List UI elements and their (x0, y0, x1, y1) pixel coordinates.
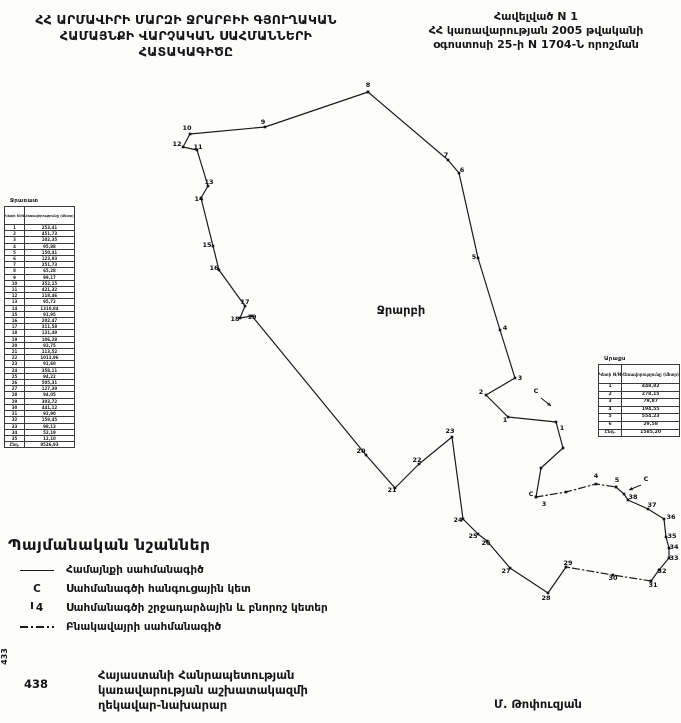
boundary-point-label: 5 (615, 476, 620, 484)
table-row: 5554,23 (599, 414, 680, 422)
table-row: 1448,82 (599, 384, 680, 392)
legend-title: Պայմանական նշաններ (8, 536, 328, 554)
distance-table-left-body: 1253,412451,733102,35495,885150,416123,9… (5, 225, 75, 448)
boundary-point-label: 13 (204, 178, 213, 186)
boundary-point-label: 26 (481, 539, 491, 547)
legend-item-label: Սահմանագծի շրջադարձային և բնորոշ կետեր (66, 602, 328, 614)
boundary-point-marker (182, 146, 185, 149)
boundary-point-marker (540, 467, 543, 470)
issuing-authority: Հայաստանի Հանրապետության կառավարության ա… (98, 668, 308, 713)
issuing-authority-line2: կառավարության աշխատակազմի (98, 683, 308, 698)
boundary-point-label: 11 (193, 143, 203, 151)
legend-item-label: Սահմանագծի հանգուցային կետ (66, 583, 251, 595)
boundary-point-marker (623, 493, 626, 496)
boundary-point-label: 3 (518, 374, 523, 382)
boundary-point-label: 32 (657, 567, 666, 575)
boundary-point-marker (562, 447, 565, 450)
legend-item-settlement-boundary: Բնակավայրի սահմանագիծ (8, 621, 328, 633)
boundary-segment-solid (183, 92, 566, 593)
turning-point-symbol: 4 (8, 602, 66, 614)
boundary-point-marker (264, 126, 267, 129)
legend-item-label: Համայնքի սահմանագիծ (66, 564, 204, 576)
signature-name: Մ. Թոփուզյան (494, 697, 582, 711)
boundary-point-label: 23 (445, 427, 454, 435)
boundary-point-marker (477, 257, 480, 260)
boundary-point-label: 24 (453, 516, 463, 524)
boundary-point-label: 4 (594, 472, 599, 480)
boundary-point-label: C (529, 490, 534, 498)
legend-item-junction-point: C Սահմանագծի հանգուցային կետ (8, 583, 328, 595)
legend-item-label: Բնակավայրի սահմանագիծ (66, 621, 221, 633)
boundary-point-label: 10 (182, 124, 192, 132)
boundary-point-marker (189, 133, 192, 136)
boundary-point-label: 16 (209, 264, 219, 272)
table-row: 4194,55 (599, 406, 680, 414)
junction-point-symbol: C (8, 583, 66, 595)
boundary-point-label: 20 (356, 447, 366, 455)
issuing-authority-line1: Հայաստանի Հանրապետության (98, 668, 308, 683)
boundary-point-label: 15 (202, 241, 212, 249)
region-label: Ջրարբի (366, 303, 436, 317)
boundary-segment-dashdot (536, 484, 616, 497)
boundary-point-label: 21 (387, 486, 397, 494)
boundary-point-label: C (534, 387, 539, 395)
boundary-point-marker (499, 329, 502, 332)
boundary-point-label: 9 (261, 118, 266, 126)
boundary-point-label: 37 (647, 501, 656, 509)
document-sheet: ՀՀ ԱՐՄԱՎԻՐԻ ՄԱՐԶԻ ՋՐԱՐԲԻԻ ԳՅՈՒՂԱԿԱՆ ՀԱՄԱ… (0, 0, 681, 723)
boundary-point-marker (615, 486, 618, 489)
boundary-point-label: 38 (628, 493, 638, 501)
boundary-point-label: 1 (503, 416, 508, 424)
boundary-point-label: C (644, 475, 649, 483)
distance-table-right-title: Արաքս (604, 356, 680, 362)
boundary-point-marker (663, 518, 666, 521)
settlement-boundary-line-icon (8, 626, 66, 628)
boundary-point-label: 35 (667, 532, 677, 540)
boundary-lines (183, 92, 669, 593)
boundary-point-marker (595, 483, 598, 486)
boundary-point-marker (212, 245, 215, 248)
boundary-point-markers (182, 91, 671, 595)
distance-table-left-grid: Կետի N/N Հեռավորությունը (մետր) 1253,412… (4, 206, 75, 448)
col-header-distance: Հեռավորությունը (մետր) (25, 207, 75, 225)
table-total-row: Ընդ.8536,93 (5, 442, 75, 448)
table-row: 379,87 (599, 399, 680, 407)
boundary-point-marker (555, 421, 558, 424)
boundary-point-labels: 89101211131415161718197654321C1202122232… (172, 81, 679, 602)
legend: Պայմանական նշաններ Համայնքի սահմանագիծ C… (8, 536, 328, 640)
distance-table-left: Ջրառատ Կետի N/N Հեռավորությունը (մետր) 1… (4, 198, 75, 448)
col-header-point: Կետի N/N (599, 365, 622, 384)
boundary-point-label: 34 (669, 543, 679, 551)
distance-table-left-title: Ջրառատ (10, 198, 75, 204)
boundary-point-label: 36 (666, 513, 676, 521)
distance-table-right-body: 1448,822278,15379,874194,555554,23629,58… (599, 384, 680, 437)
boundary-point-label: 3 (542, 500, 547, 508)
distance-table-right: Արաքս Կետի N/N Հեռավորությունը (մետր) 14… (598, 356, 680, 437)
boundary-point-label: 25 (468, 532, 478, 540)
col-header-distance: Հեռավորությունը (մետր) (622, 365, 680, 384)
boundary-point-label: 31 (648, 581, 658, 589)
boundary-point-label: 8 (366, 81, 371, 89)
table-row: 629,58 (599, 421, 680, 429)
boundary-point-marker (535, 496, 538, 499)
boundary-point-label: 7 (444, 151, 449, 159)
boundary-point-label: 28 (541, 594, 551, 602)
boundary-point-marker (451, 436, 454, 439)
boundary-point-label: 33 (669, 554, 678, 562)
margin-number-vertical: 433 (0, 648, 9, 665)
page-number: 438 (24, 677, 48, 691)
boundary-point-marker (485, 394, 488, 397)
boundary-point-marker (565, 491, 568, 494)
boundary-point-marker (514, 377, 517, 380)
community-boundary-line-icon (8, 570, 66, 571)
boundary-point-label: 4 (503, 324, 508, 332)
boundary-point-marker (447, 159, 450, 162)
legend-item-community-boundary: Համայնքի սահմանագիծ (8, 564, 328, 576)
col-header-point: Կետի N/N (5, 207, 25, 225)
boundary-point-label: 1 (560, 424, 565, 432)
table-total-row: Ընդ.1585,20 (599, 429, 680, 437)
boundary-point-label: 30 (608, 574, 618, 582)
table-row: 2278,15 (599, 391, 680, 399)
legend-item-turning-points: 4 Սահմանագծի շրջադարձային և բնորոշ կետեր (8, 602, 328, 614)
issuing-authority-line3: ղեկավար-նախարար (98, 698, 308, 713)
boundary-point-label: 29 (563, 559, 573, 567)
boundary-segment-solid (368, 92, 563, 497)
boundary-point-label: 2 (479, 388, 484, 396)
boundary-point-marker (367, 91, 370, 94)
boundary-point-label: 5 (472, 253, 477, 261)
boundary-point-label: 18 (230, 315, 240, 323)
boundary-point-label: 14 (194, 195, 204, 203)
boundary-point-label: 17 (240, 298, 249, 306)
boundary-point-label: 12 (172, 140, 181, 148)
boundary-point-label: 19 (247, 313, 257, 321)
boundary-point-label: 22 (412, 456, 421, 464)
boundary-point-label: 27 (501, 567, 510, 575)
boundary-point-label: 6 (460, 166, 465, 174)
distance-table-right-grid: Կետի N/N Հեռավորությունը (մետր) 1448,822… (598, 364, 680, 437)
